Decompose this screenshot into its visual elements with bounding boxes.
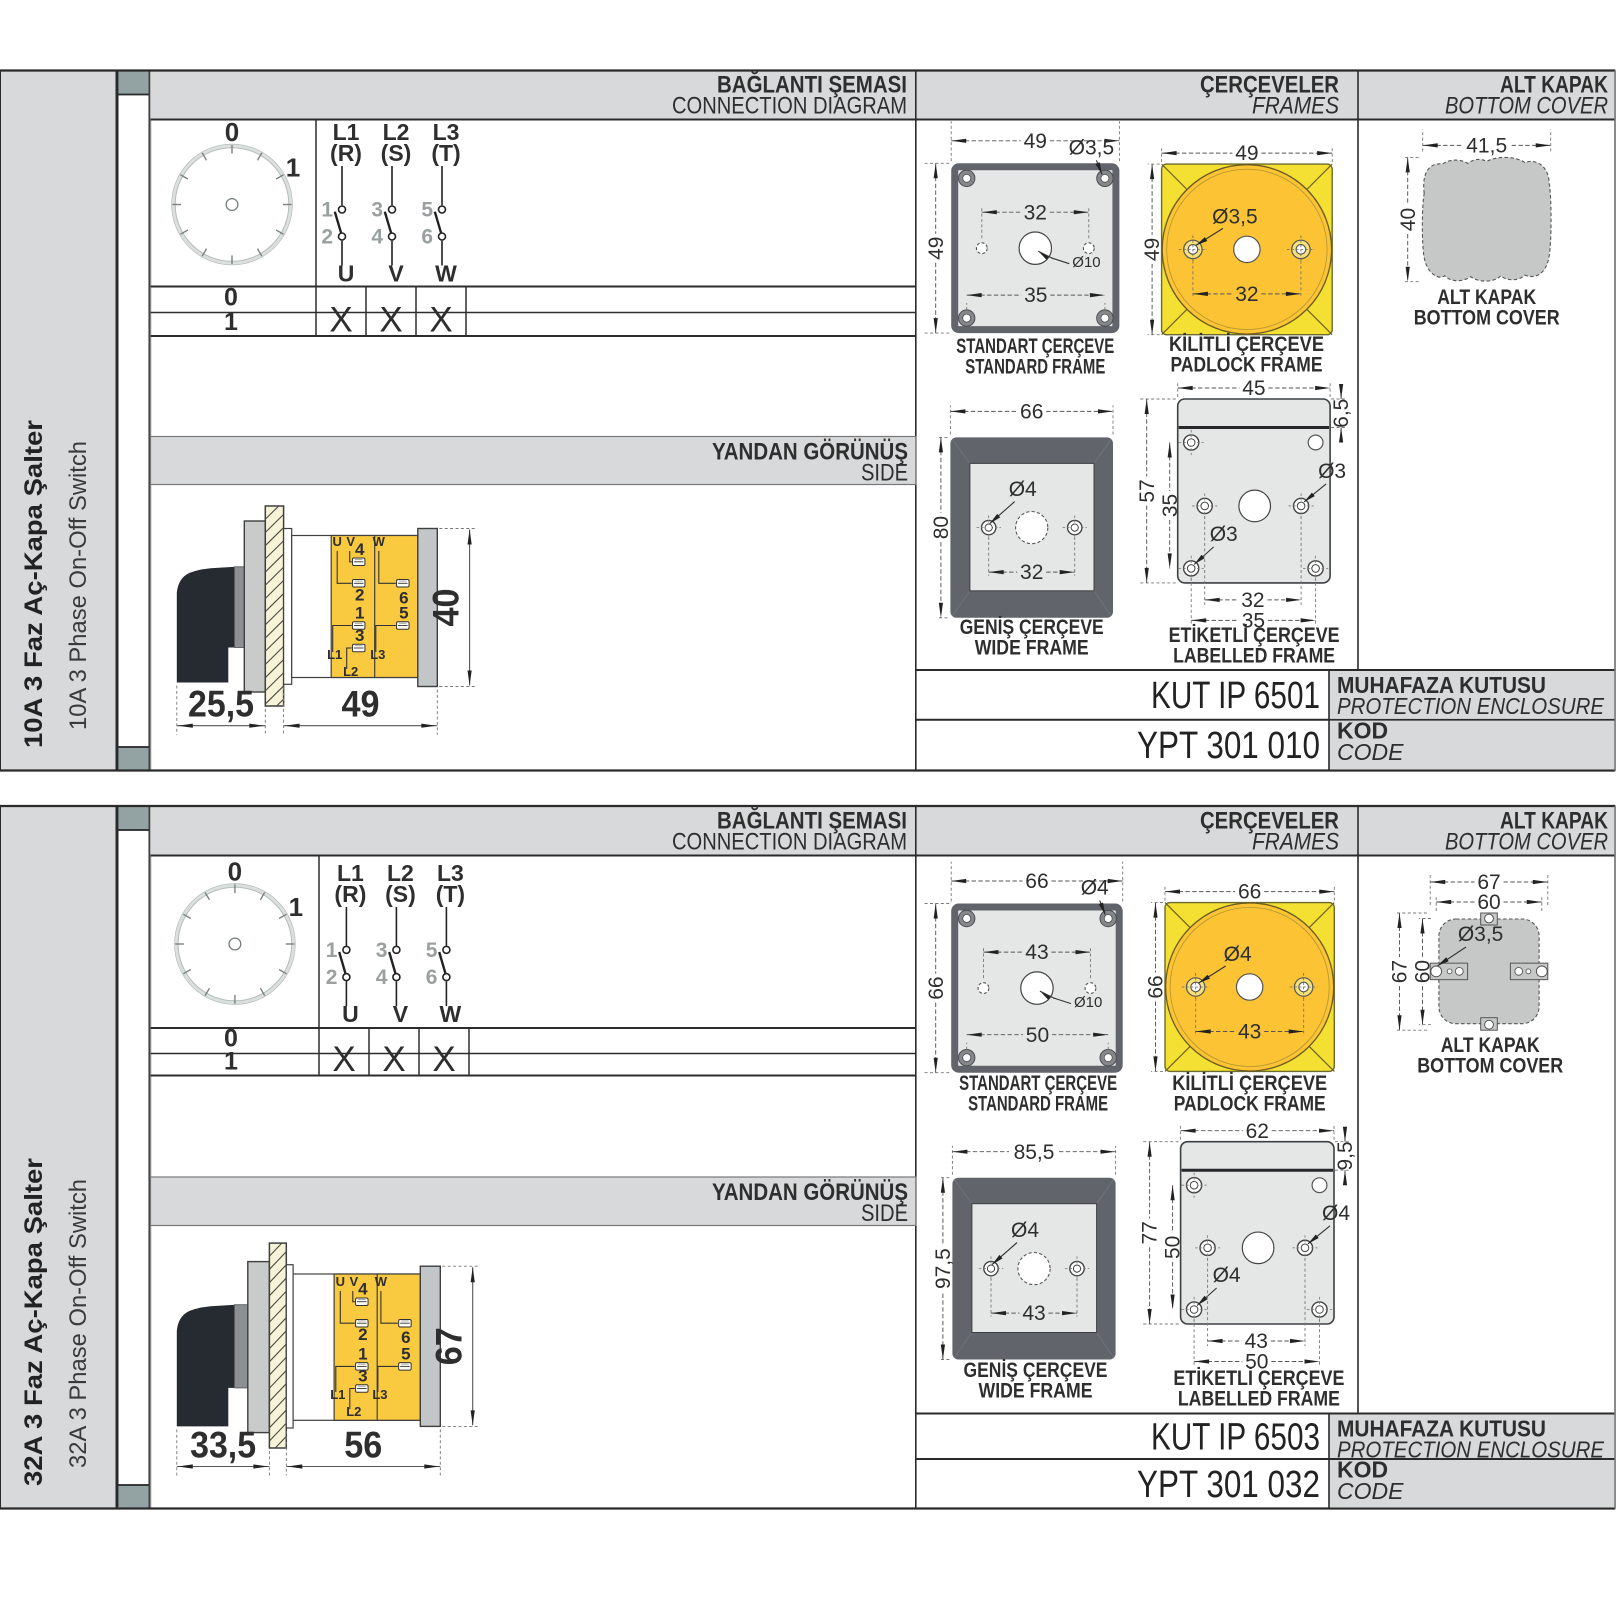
svg-text:X: X (432, 1040, 455, 1079)
svg-text:32A 3 Phase On-Off Switch: 32A 3 Phase On-Off Switch (65, 1179, 92, 1468)
svg-text:60: 60 (1412, 960, 1435, 983)
svg-text:X: X (382, 1040, 405, 1079)
svg-text:45: 45 (1242, 377, 1265, 400)
svg-text:BOTTOM COVER: BOTTOM COVER (1417, 1055, 1563, 1078)
svg-text:10A 3 Phase On-Off Switch: 10A 3 Phase On-Off Switch (65, 441, 92, 730)
svg-text:Ø4: Ø4 (1322, 1202, 1350, 1225)
svg-text:LABELLED FRAME: LABELLED FRAME (1173, 645, 1335, 668)
svg-text:W: W (373, 534, 386, 549)
svg-text:0: 0 (225, 117, 239, 147)
svg-text:43: 43 (1022, 1302, 1045, 1325)
svg-text:77: 77 (1139, 1221, 1162, 1244)
svg-text:25,5: 25,5 (188, 684, 254, 725)
svg-text:Ø4: Ø4 (1081, 877, 1109, 900)
svg-text:41,5: 41,5 (1466, 135, 1507, 158)
svg-text:U: U (333, 534, 342, 549)
svg-text:4: 4 (358, 1280, 368, 1299)
svg-text:3: 3 (358, 1367, 367, 1386)
svg-text:(S): (S) (381, 140, 412, 166)
svg-text:Ø3,5: Ø3,5 (1458, 923, 1504, 946)
svg-text:W: W (375, 1274, 388, 1289)
svg-text:L3: L3 (370, 647, 385, 662)
svg-text:5: 5 (401, 1344, 410, 1363)
svg-text:1: 1 (358, 1344, 367, 1363)
svg-text:50: 50 (1162, 1236, 1185, 1259)
svg-text:PADLOCK FRAME: PADLOCK FRAME (1174, 1093, 1326, 1116)
svg-text:40: 40 (426, 589, 467, 627)
svg-text:L1: L1 (327, 647, 342, 662)
svg-text:2: 2 (321, 226, 333, 249)
svg-text:YPT 301 032: YPT 301 032 (1137, 1464, 1320, 1506)
svg-text:67: 67 (1389, 960, 1412, 983)
svg-text:57: 57 (1136, 479, 1159, 502)
svg-text:3: 3 (355, 626, 364, 645)
svg-text:49: 49 (1235, 142, 1258, 165)
svg-text:Ø3,5: Ø3,5 (1212, 205, 1258, 228)
svg-text:62: 62 (1246, 1120, 1269, 1143)
svg-text:L1: L1 (330, 1387, 345, 1402)
svg-text:1: 1 (224, 308, 238, 336)
svg-text:X: X (329, 301, 352, 340)
svg-text:10A 3 Faz Aç-Kapa Şalter: 10A 3 Faz Aç-Kapa Şalter (20, 420, 48, 748)
svg-text:Ø4: Ø4 (1224, 943, 1252, 966)
svg-text:X: X (332, 1040, 355, 1079)
svg-text:L2: L2 (346, 1404, 361, 1419)
svg-text:32: 32 (1024, 201, 1047, 224)
svg-text:85,5: 85,5 (1014, 1141, 1055, 1164)
svg-text:66: 66 (1145, 975, 1168, 998)
svg-text:3: 3 (376, 939, 388, 962)
svg-text:40: 40 (1397, 208, 1420, 231)
svg-text:PADLOCK FRAME: PADLOCK FRAME (1171, 354, 1323, 377)
svg-text:PROTECTION ENCLOSURE: PROTECTION ENCLOSURE (1337, 693, 1605, 719)
svg-text:2: 2 (326, 966, 338, 989)
svg-text:49: 49 (1141, 238, 1164, 261)
svg-text:1: 1 (355, 604, 364, 623)
svg-text:50: 50 (1026, 1024, 1049, 1047)
svg-text:97,5: 97,5 (932, 1248, 955, 1289)
svg-text:V: V (393, 1001, 409, 1027)
svg-text:FRAMES: FRAMES (1252, 93, 1339, 120)
svg-text:5: 5 (426, 939, 438, 962)
svg-text:Ø3,5: Ø3,5 (1069, 136, 1115, 159)
svg-text:YPT 301 010: YPT 301 010 (1137, 725, 1320, 767)
svg-text:2: 2 (355, 585, 364, 604)
svg-text:4: 4 (355, 540, 365, 559)
svg-text:32: 32 (1235, 283, 1258, 306)
svg-text:L3: L3 (372, 1387, 387, 1402)
svg-text:V: V (388, 261, 404, 287)
svg-text:(T): (T) (436, 881, 465, 907)
svg-text:1: 1 (289, 892, 303, 922)
svg-text:U: U (336, 1274, 345, 1289)
svg-text:56: 56 (344, 1425, 382, 1466)
svg-text:6: 6 (421, 226, 433, 249)
svg-text:W: W (440, 1001, 462, 1027)
svg-text:9,5: 9,5 (1334, 1141, 1357, 1170)
svg-text:WIDE FRAME: WIDE FRAME (979, 1380, 1093, 1403)
svg-text:(T): (T) (431, 140, 460, 166)
svg-text:Ø4: Ø4 (1011, 1219, 1039, 1242)
svg-text:U: U (338, 261, 355, 287)
svg-text:6,5: 6,5 (1330, 399, 1353, 428)
svg-text:CODE: CODE (1337, 1478, 1404, 1504)
svg-text:43: 43 (1238, 1021, 1261, 1044)
svg-text:Ø4: Ø4 (1213, 1264, 1241, 1287)
svg-text:6: 6 (426, 966, 438, 989)
svg-text:L2: L2 (343, 664, 358, 679)
svg-text:5: 5 (421, 199, 433, 222)
svg-text:BOTTOM COVER: BOTTOM COVER (1445, 93, 1608, 120)
svg-text:35: 35 (1159, 494, 1182, 517)
svg-text:STANDARD FRAME: STANDARD FRAME (968, 1093, 1108, 1116)
svg-text:66: 66 (925, 976, 948, 999)
svg-text:1: 1 (286, 153, 300, 183)
svg-text:32A 3 Faz Aç-Kapa Şalter: 32A 3 Faz Aç-Kapa Şalter (20, 1158, 48, 1486)
svg-text:V: V (349, 1274, 358, 1289)
svg-text:SIDE: SIDE (861, 460, 908, 487)
svg-text:Ø4: Ø4 (1009, 478, 1037, 501)
svg-text:STANDARD FRAME: STANDARD FRAME (965, 356, 1105, 379)
svg-text:1: 1 (321, 199, 333, 222)
svg-text:4: 4 (376, 966, 388, 989)
svg-text:WIDE FRAME: WIDE FRAME (975, 637, 1089, 660)
svg-text:80: 80 (930, 516, 953, 539)
svg-text:Ø10: Ø10 (1074, 994, 1102, 1011)
svg-text:49: 49 (925, 237, 948, 260)
svg-text:BOTTOM COVER: BOTTOM COVER (1414, 307, 1560, 330)
svg-text:CODE: CODE (1337, 739, 1404, 765)
svg-text:67: 67 (429, 1327, 470, 1365)
svg-text:(R): (R) (334, 881, 366, 907)
svg-text:CONNECTION DIAGRAM: CONNECTION DIAGRAM (672, 93, 907, 120)
svg-text:66: 66 (1238, 881, 1261, 904)
svg-text:W: W (435, 261, 457, 287)
svg-text:49: 49 (1024, 130, 1047, 153)
svg-text:0: 0 (228, 857, 242, 887)
svg-text:Ø3: Ø3 (1318, 460, 1346, 483)
svg-text:V: V (346, 534, 355, 549)
svg-text:CONNECTION DIAGRAM: CONNECTION DIAGRAM (672, 829, 907, 856)
svg-text:FRAMES: FRAMES (1252, 829, 1339, 856)
svg-text:4: 4 (371, 226, 383, 249)
svg-text:66: 66 (1025, 870, 1048, 893)
svg-text:2: 2 (358, 1325, 367, 1344)
svg-text:43: 43 (1025, 941, 1048, 964)
svg-text:U: U (342, 1001, 359, 1027)
svg-text:X: X (379, 301, 402, 340)
svg-text:1: 1 (224, 1048, 238, 1076)
svg-text:60: 60 (1477, 891, 1500, 914)
svg-text:LABELLED FRAME: LABELLED FRAME (1178, 1388, 1340, 1411)
svg-text:SIDE: SIDE (861, 1200, 908, 1227)
svg-text:X: X (429, 301, 452, 340)
svg-text:BOTTOM COVER: BOTTOM COVER (1445, 829, 1608, 856)
svg-text:(R): (R) (330, 140, 362, 166)
svg-text:32: 32 (1020, 561, 1043, 584)
svg-text:5: 5 (399, 604, 408, 623)
svg-text:KUT IP 6501: KUT IP 6501 (1151, 675, 1320, 717)
svg-text:33,5: 33,5 (190, 1425, 256, 1466)
svg-text:49: 49 (341, 684, 379, 725)
svg-text:66: 66 (1020, 401, 1043, 424)
svg-text:35: 35 (1024, 284, 1047, 307)
svg-text:Ø3: Ø3 (1210, 523, 1238, 546)
svg-text:Ø10: Ø10 (1072, 254, 1100, 271)
svg-text:3: 3 (371, 199, 383, 222)
svg-text:KUT IP 6503: KUT IP 6503 (1151, 1416, 1320, 1458)
svg-text:(S): (S) (385, 881, 416, 907)
svg-text:1: 1 (326, 939, 338, 962)
